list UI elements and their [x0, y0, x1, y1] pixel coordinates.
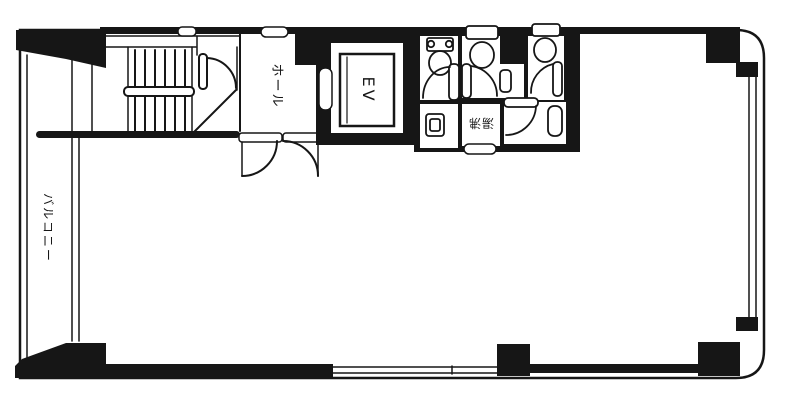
elevator-shaft: EV — [316, 33, 416, 145]
pillar-top-right — [706, 30, 740, 63]
wall-under-stairs — [36, 131, 240, 138]
stair-landing-bar — [124, 87, 194, 96]
stair-door-leaf — [199, 54, 207, 89]
floor-plan-drawing: バルコニー ホール — [0, 0, 787, 405]
wall-bottom-right — [530, 364, 702, 373]
elevator-label: EV — [359, 76, 378, 103]
wall-bottom-left — [15, 343, 333, 378]
elevator-door-marker — [319, 68, 332, 110]
hall-double-door — [239, 133, 319, 176]
hall-label: ホール — [269, 63, 284, 108]
toilet-block: 湯沸 — [414, 24, 580, 154]
pillar-bottom-right — [698, 342, 740, 376]
top-wall-opening-1 — [178, 27, 196, 36]
balcony-label: バルコニー — [41, 193, 55, 263]
floor-plan-page: バルコニー ホール — [0, 0, 787, 405]
stair-door-swing — [207, 58, 236, 88]
wall-step-right-bottom — [736, 317, 758, 331]
wall-step-right-top — [736, 62, 758, 77]
pillar-bottom-middle — [497, 344, 530, 376]
water-room-opening — [464, 144, 496, 154]
water-heating-label: 湯沸 — [468, 116, 494, 130]
top-wall-opening-2 — [261, 27, 288, 37]
balcony: バルコニー — [41, 138, 79, 341]
stair-break-line — [193, 90, 236, 133]
window-bottom — [333, 366, 497, 374]
window-right — [749, 77, 756, 318]
